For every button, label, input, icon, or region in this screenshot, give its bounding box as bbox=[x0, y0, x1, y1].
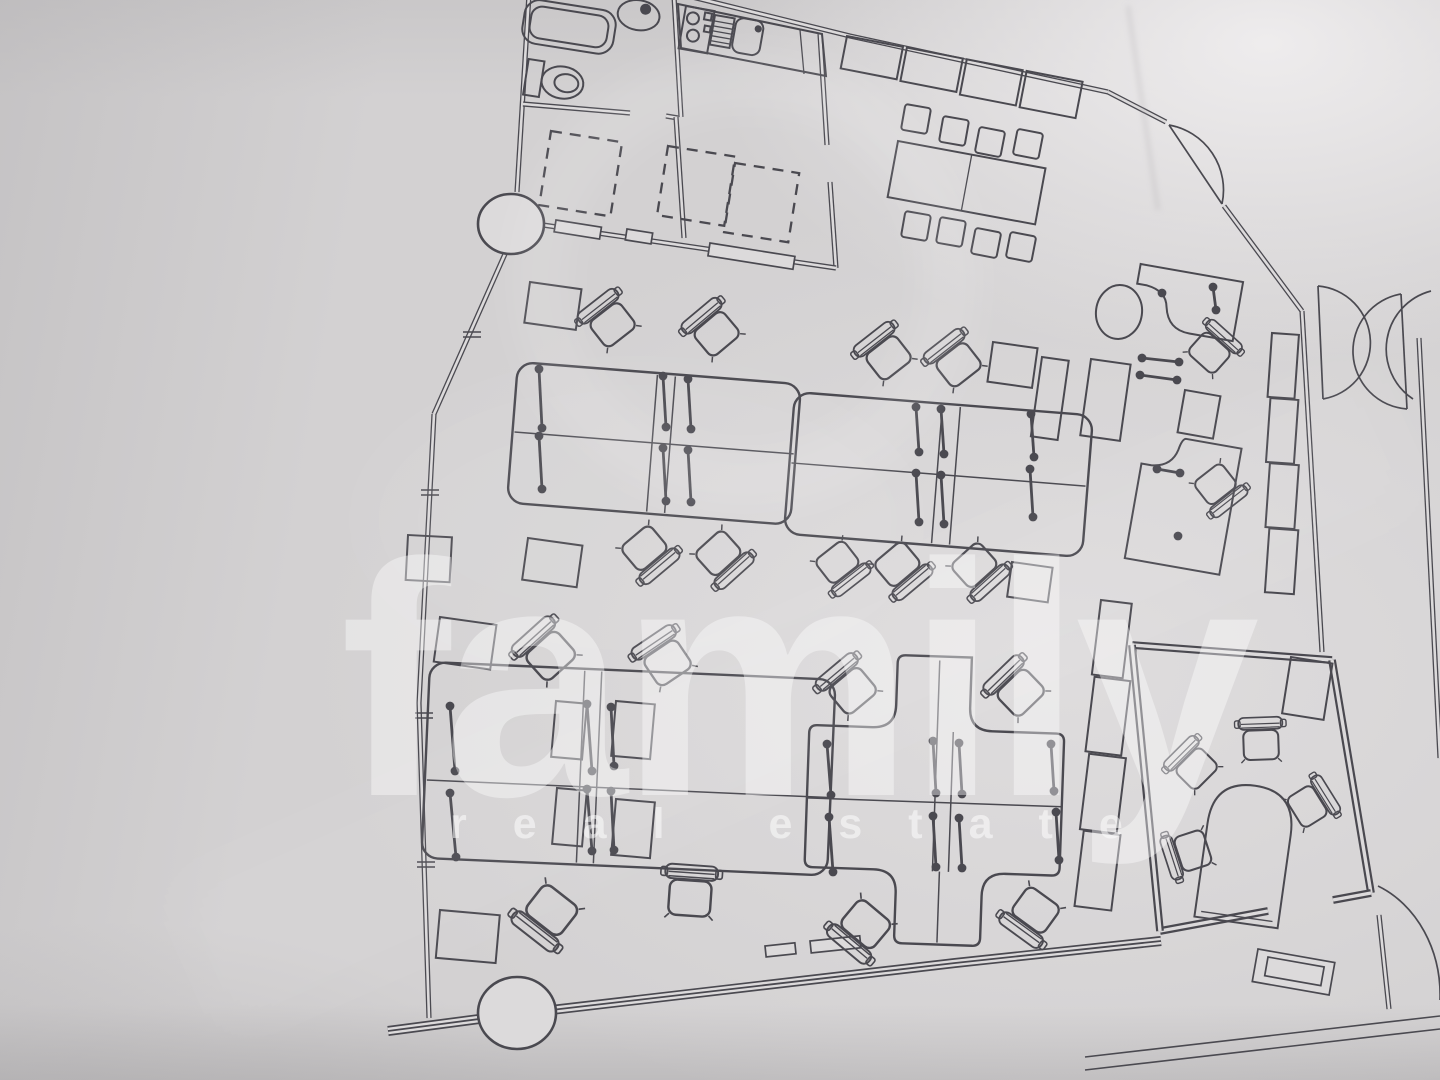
wall-corridor-right bbox=[1419, 338, 1440, 758]
wall-diagonal-b bbox=[1224, 206, 1302, 311]
dining-chair bbox=[939, 116, 969, 146]
dining-chair bbox=[1006, 232, 1036, 262]
kitchen-sink bbox=[731, 17, 765, 56]
wall-vestibule bbox=[1379, 915, 1389, 1009]
column bbox=[478, 977, 556, 1049]
office-chair bbox=[1179, 315, 1247, 383]
wall-sill bbox=[765, 943, 796, 957]
wall-left-diagonal bbox=[434, 254, 505, 414]
office-chair bbox=[1279, 770, 1345, 838]
door-leaf bbox=[1169, 125, 1222, 204]
dashed-zone bbox=[657, 146, 735, 226]
desk-divider-bar bbox=[1209, 283, 1221, 315]
grill bbox=[710, 15, 735, 48]
floorplan-photo: family real estate bbox=[0, 0, 1440, 1080]
dashed-zone bbox=[724, 163, 799, 242]
dining-chair bbox=[975, 127, 1005, 157]
wall-diagonal-a bbox=[1108, 92, 1166, 122]
grommet-dot bbox=[1158, 289, 1167, 298]
desk-divider-bar bbox=[1136, 371, 1182, 385]
floorplan-drawing: family real estate bbox=[0, 0, 1440, 1080]
wall-kitchen-right-b bbox=[830, 182, 836, 268]
wall-meeting-bottom-b bbox=[1160, 911, 1268, 931]
office-chair bbox=[676, 293, 750, 367]
office-chair bbox=[993, 877, 1071, 953]
wall-sill bbox=[625, 229, 652, 244]
washbasin bbox=[616, 0, 662, 33]
wall-sill bbox=[708, 243, 795, 269]
toilet bbox=[523, 59, 586, 104]
wall-exterior-a bbox=[1085, 1016, 1440, 1057]
wall-meeting-right bbox=[1332, 660, 1371, 893]
watermark-secondary-text: real estate bbox=[450, 800, 1169, 848]
office-chair bbox=[572, 284, 646, 357]
desk-divider-bar bbox=[1138, 354, 1184, 367]
cabinet-b bbox=[1080, 359, 1130, 441]
wall-exterior-b bbox=[1085, 1029, 1440, 1070]
stove bbox=[679, 6, 715, 53]
office-chair bbox=[821, 888, 903, 969]
dining-chair bbox=[1013, 129, 1043, 159]
side-table bbox=[987, 342, 1037, 388]
reception-round-table bbox=[1092, 282, 1145, 342]
wall-meeting-bottom-a bbox=[1333, 893, 1371, 900]
cabinet-a bbox=[1031, 357, 1069, 440]
paper-crease bbox=[1128, 6, 1158, 210]
desk-divider-bar bbox=[1027, 410, 1039, 462]
bathtub bbox=[520, 0, 618, 56]
meeting-cabinet-corner bbox=[1282, 657, 1332, 720]
door-swing-edge bbox=[1386, 291, 1431, 399]
